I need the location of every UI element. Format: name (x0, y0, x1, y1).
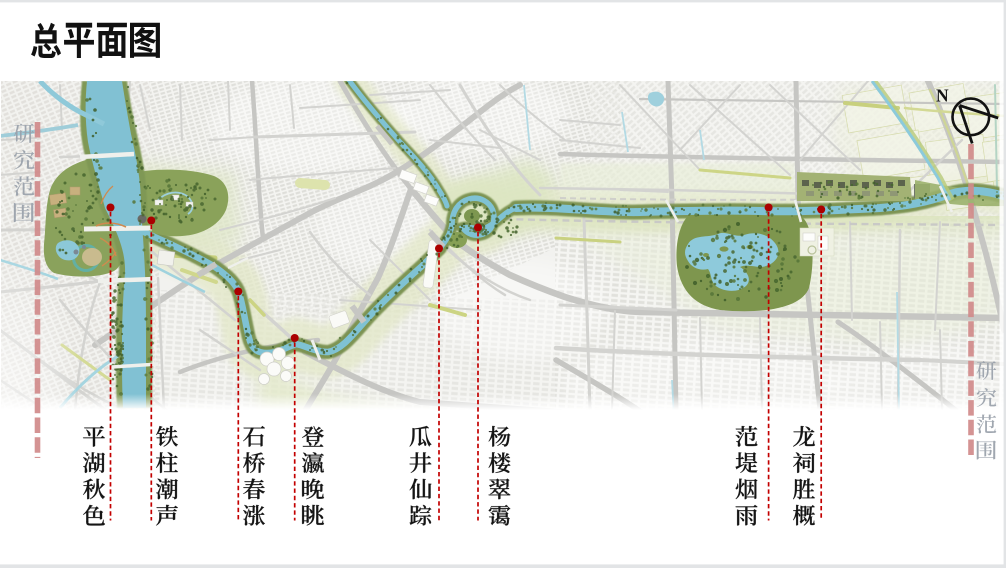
svg-text:N: N (936, 86, 949, 106)
